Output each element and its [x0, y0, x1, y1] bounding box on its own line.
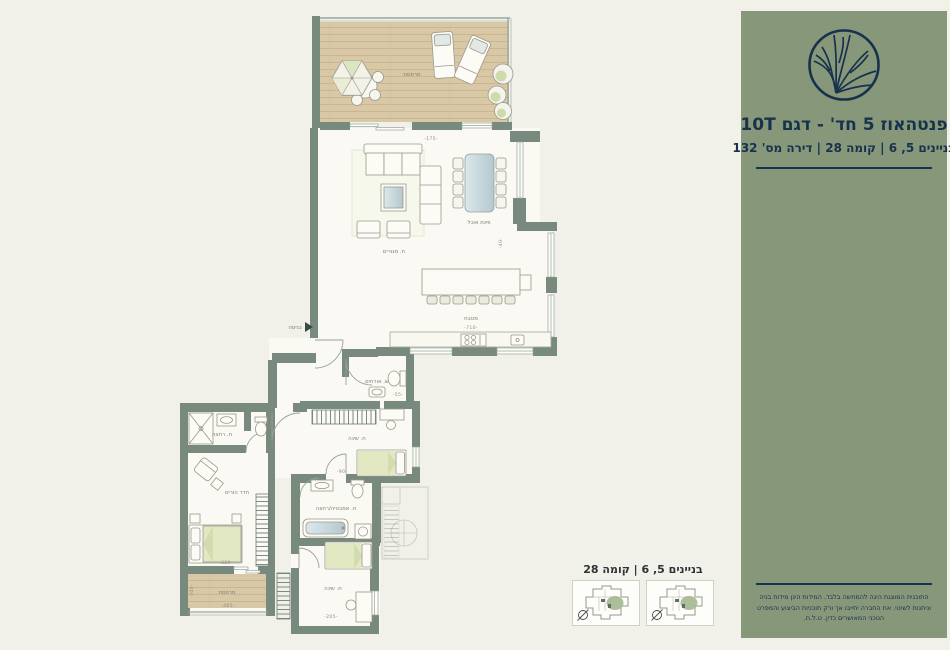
- divider: [756, 583, 932, 585]
- unit-subtitle: בניינים 5, 6 | קומה 28 | דירה מס' 132: [732, 141, 950, 155]
- label-living: ח. מגורים: [383, 249, 406, 255]
- dining-table: [465, 154, 494, 212]
- entrance: כניסה: [288, 322, 313, 332]
- brand-logo: [806, 27, 882, 103]
- label-terrace-master: מרפסת: [218, 590, 235, 596]
- terrace-top: מרפסת -65-: [315, 18, 513, 122]
- leaf-logo-icon: [806, 27, 882, 103]
- north-arrow-icon: [652, 610, 663, 621]
- bed: [189, 525, 242, 563]
- bar-stools: [427, 296, 515, 304]
- label-master-bedroom: חדר הורים: [225, 490, 250, 496]
- dim-living-top: -175-: [424, 136, 438, 142]
- dim-right-side: -40-: [498, 238, 504, 248]
- bed: [325, 542, 372, 569]
- coffee-table: [381, 184, 406, 211]
- dim-master-terrace-bottom: -485-: [221, 603, 235, 609]
- label-bedroom2: ח. שינה: [348, 436, 366, 442]
- washing-machine: [355, 524, 371, 539]
- label-entrance: כניסה: [288, 325, 301, 331]
- desk: [356, 592, 372, 622]
- legal-disclaimer: התוכנית המוצגת הינה להמחשה בלבד. המידות …: [757, 592, 931, 624]
- dim-master-terrace-side: -300-: [189, 584, 195, 598]
- north-arrow-icon: [578, 610, 589, 621]
- keyplan: בניינים 5, 6 | קומה 28: [568, 563, 718, 626]
- info-sidebar: פנטהאוז 5 חד' - דגם 10T בניינים 5, 6 | ק…: [741, 11, 947, 638]
- label-dining: פינת אוכל: [468, 220, 492, 226]
- bathtub: [303, 519, 348, 537]
- label-terrace-top: מרפסת: [403, 72, 420, 78]
- dim-master-terrace-top: -320-: [219, 560, 233, 566]
- desk: [380, 409, 404, 420]
- dim-bed3: -205-: [324, 614, 338, 620]
- minimap-svg: [575, 583, 637, 623]
- minimap-svg: [649, 583, 711, 623]
- shower: [189, 413, 213, 444]
- divider: [756, 167, 932, 169]
- unit-title: פנטהאוז 5 חד' - דגם 10T: [740, 115, 947, 135]
- dim-wc: -55-: [393, 392, 403, 398]
- lounge-chair-1: [431, 31, 455, 78]
- nightstand: [232, 514, 241, 523]
- stove: [461, 334, 486, 346]
- nightstand: [190, 514, 200, 523]
- building-core: [382, 487, 428, 559]
- keyplan-title: בניינים 5, 6 | קומה 28: [568, 563, 718, 576]
- kitchen-island: [422, 269, 520, 295]
- label-kitchen: מטבח: [464, 316, 478, 322]
- closet-master: [256, 494, 269, 566]
- brochure-page: מרפסת -65-: [0, 0, 950, 650]
- closet-bedroom3: [277, 573, 290, 619]
- label-guest-wc: ש. אורחים: [365, 379, 389, 385]
- kitchen-sink: [511, 335, 524, 345]
- dim-kitchen: -710-: [464, 325, 478, 331]
- keyplan-minimap-building-6: [646, 580, 714, 626]
- closet-bedroom2: [312, 410, 376, 424]
- label-master-bath: ח. רחצה: [212, 432, 233, 438]
- label-bathroom: ח. אמבטיה/רחצה: [316, 506, 357, 512]
- bed: [357, 450, 406, 476]
- label-bedroom3: ח. שינה: [324, 586, 342, 592]
- keyplan-minimap-building-5: [572, 580, 640, 626]
- dim-bed2: -90-: [337, 469, 347, 475]
